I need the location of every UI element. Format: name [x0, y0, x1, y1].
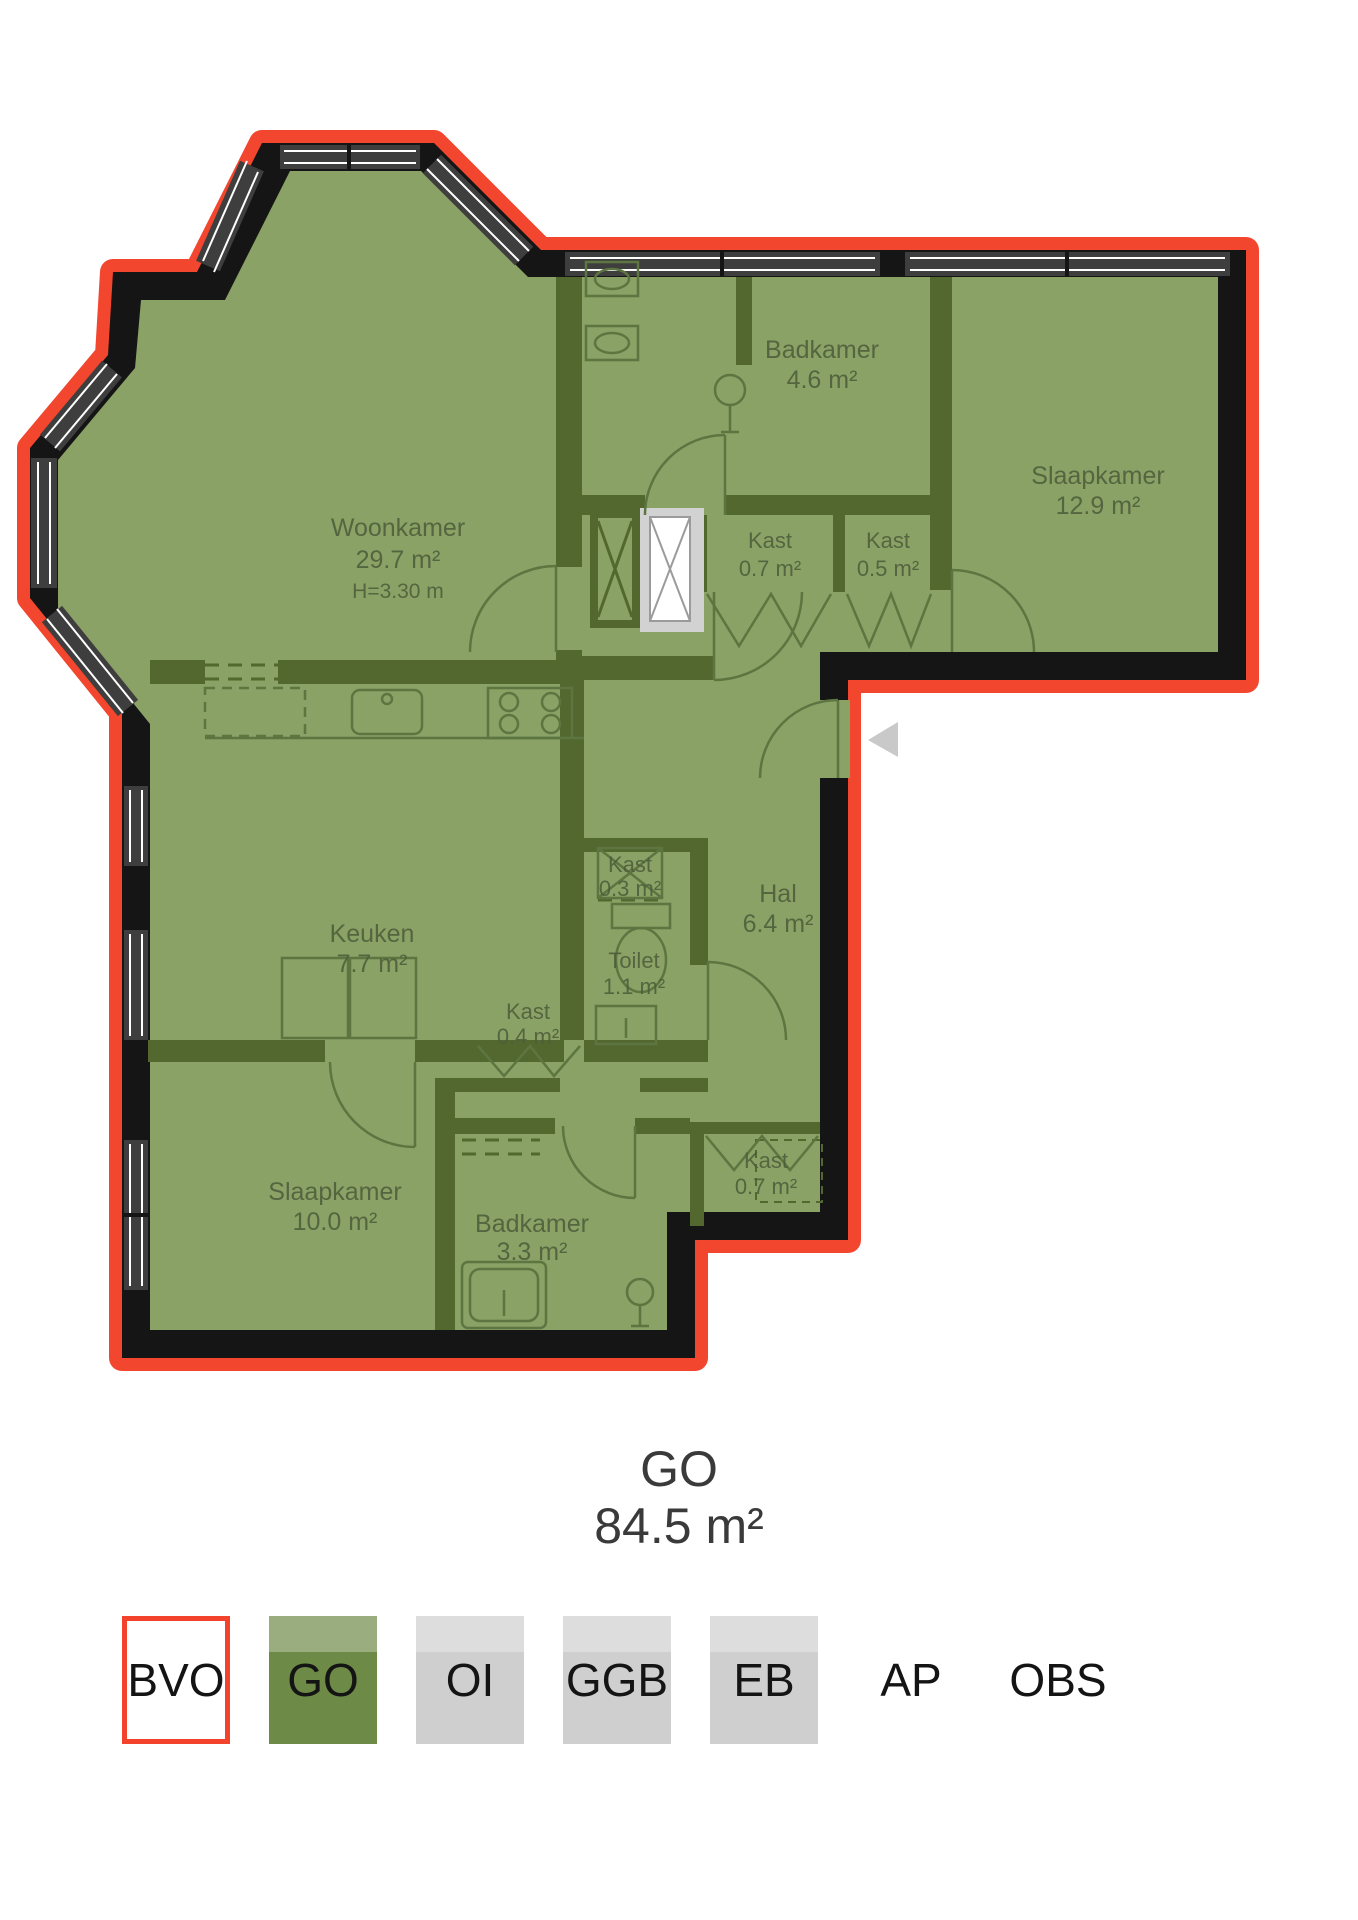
room-area-toilet: 1.1 m²	[603, 974, 665, 999]
room-area-keuken: 7.7 m²	[337, 950, 408, 978]
summary-label: GO	[0, 1441, 1358, 1498]
elevator-shaft	[594, 508, 704, 632]
room-label-woonkamer: Woonkamer	[331, 514, 465, 542]
room-label-kast-2: Kast	[866, 528, 910, 553]
room-label-slaapkamer-1: Slaapkamer	[1031, 462, 1164, 490]
entrance-opening	[818, 700, 850, 778]
room-label-keuken: Keuken	[330, 920, 415, 948]
legend-label-ap: AP	[880, 1653, 941, 1707]
room-area-kast-5: 0.7 m²	[735, 1174, 797, 1199]
room-label-slaapkamer-2: Slaapkamer	[268, 1178, 401, 1206]
legend-item-eb[interactable]: EB	[710, 1616, 818, 1744]
legend-item-obs[interactable]: OBS	[1004, 1616, 1112, 1744]
room-area-kast-2: 0.5 m²	[857, 556, 919, 581]
summary-block: GO 84.5 m²	[0, 1441, 1358, 1555]
room-area-hal: 6.4 m²	[743, 910, 814, 938]
room-label-kast-5: Kast	[744, 1148, 788, 1173]
legend-label-go: GO	[287, 1653, 359, 1707]
room-height-woonkamer: H=3.30 m	[352, 580, 444, 603]
legend-item-bvo[interactable]: BVO	[122, 1616, 230, 1744]
legend-label-bvo: BVO	[127, 1653, 224, 1707]
room-label-kast-4: Kast	[506, 999, 550, 1024]
legend-item-ggb[interactable]: GGB	[563, 1616, 671, 1744]
room-area-slaapkamer-1: 12.9 m²	[1056, 492, 1141, 520]
room-label-kast-3: Kast	[608, 852, 652, 877]
room-label-badkamer-1: Badkamer	[765, 336, 879, 364]
room-area-kast-1: 0.7 m²	[739, 556, 801, 581]
legend-item-ap[interactable]: AP	[857, 1616, 965, 1744]
legend-label-eb: EB	[733, 1653, 794, 1707]
floor-plan: Woonkamer 29.7 m² H=3.30 m Badkamer 4.6 …	[0, 0, 1358, 1430]
legend-item-oi[interactable]: OI	[416, 1616, 524, 1744]
legend: BVO GO OI GGB EB AP OBS	[122, 1616, 1112, 1744]
legend-label-oi: OI	[446, 1653, 495, 1707]
room-area-badkamer-1: 4.6 m²	[787, 366, 858, 394]
room-area-slaapkamer-2: 10.0 m²	[293, 1208, 378, 1236]
legend-label-obs: OBS	[1009, 1653, 1106, 1707]
legend-item-go[interactable]: GO	[269, 1616, 377, 1744]
room-label-toilet: Toilet	[608, 948, 659, 973]
room-area-kast-4: 0.4 m²	[497, 1024, 559, 1049]
room-area-badkamer-2: 3.3 m²	[497, 1238, 568, 1266]
room-area-woonkamer: 29.7 m²	[356, 546, 441, 574]
floorplan-page: Woonkamer 29.7 m² H=3.30 m Badkamer 4.6 …	[0, 0, 1358, 1920]
room-label-hal: Hal	[759, 880, 797, 908]
room-label-kast-1: Kast	[748, 528, 792, 553]
legend-label-ggb: GGB	[566, 1653, 668, 1707]
summary-area: 84.5 m²	[0, 1498, 1358, 1555]
entrance-arrow	[868, 722, 898, 757]
room-area-kast-3: 0.3 m²	[599, 876, 661, 901]
room-label-badkamer-2: Badkamer	[475, 1210, 589, 1238]
